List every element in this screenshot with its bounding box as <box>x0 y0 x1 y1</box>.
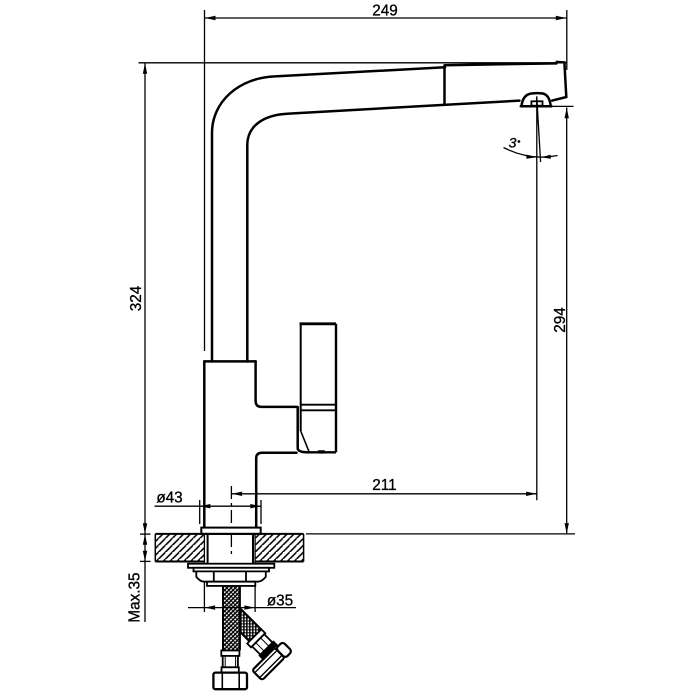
svg-text:3: 3 <box>509 134 517 150</box>
svg-text:324: 324 <box>128 285 145 311</box>
svg-text:249: 249 <box>372 3 398 20</box>
svg-text:ø35: ø35 <box>267 593 293 610</box>
svg-text:Max.35: Max.35 <box>127 572 144 622</box>
svg-text:ø43: ø43 <box>156 490 182 507</box>
svg-text:211: 211 <box>372 477 396 494</box>
svg-text:294: 294 <box>552 307 569 333</box>
